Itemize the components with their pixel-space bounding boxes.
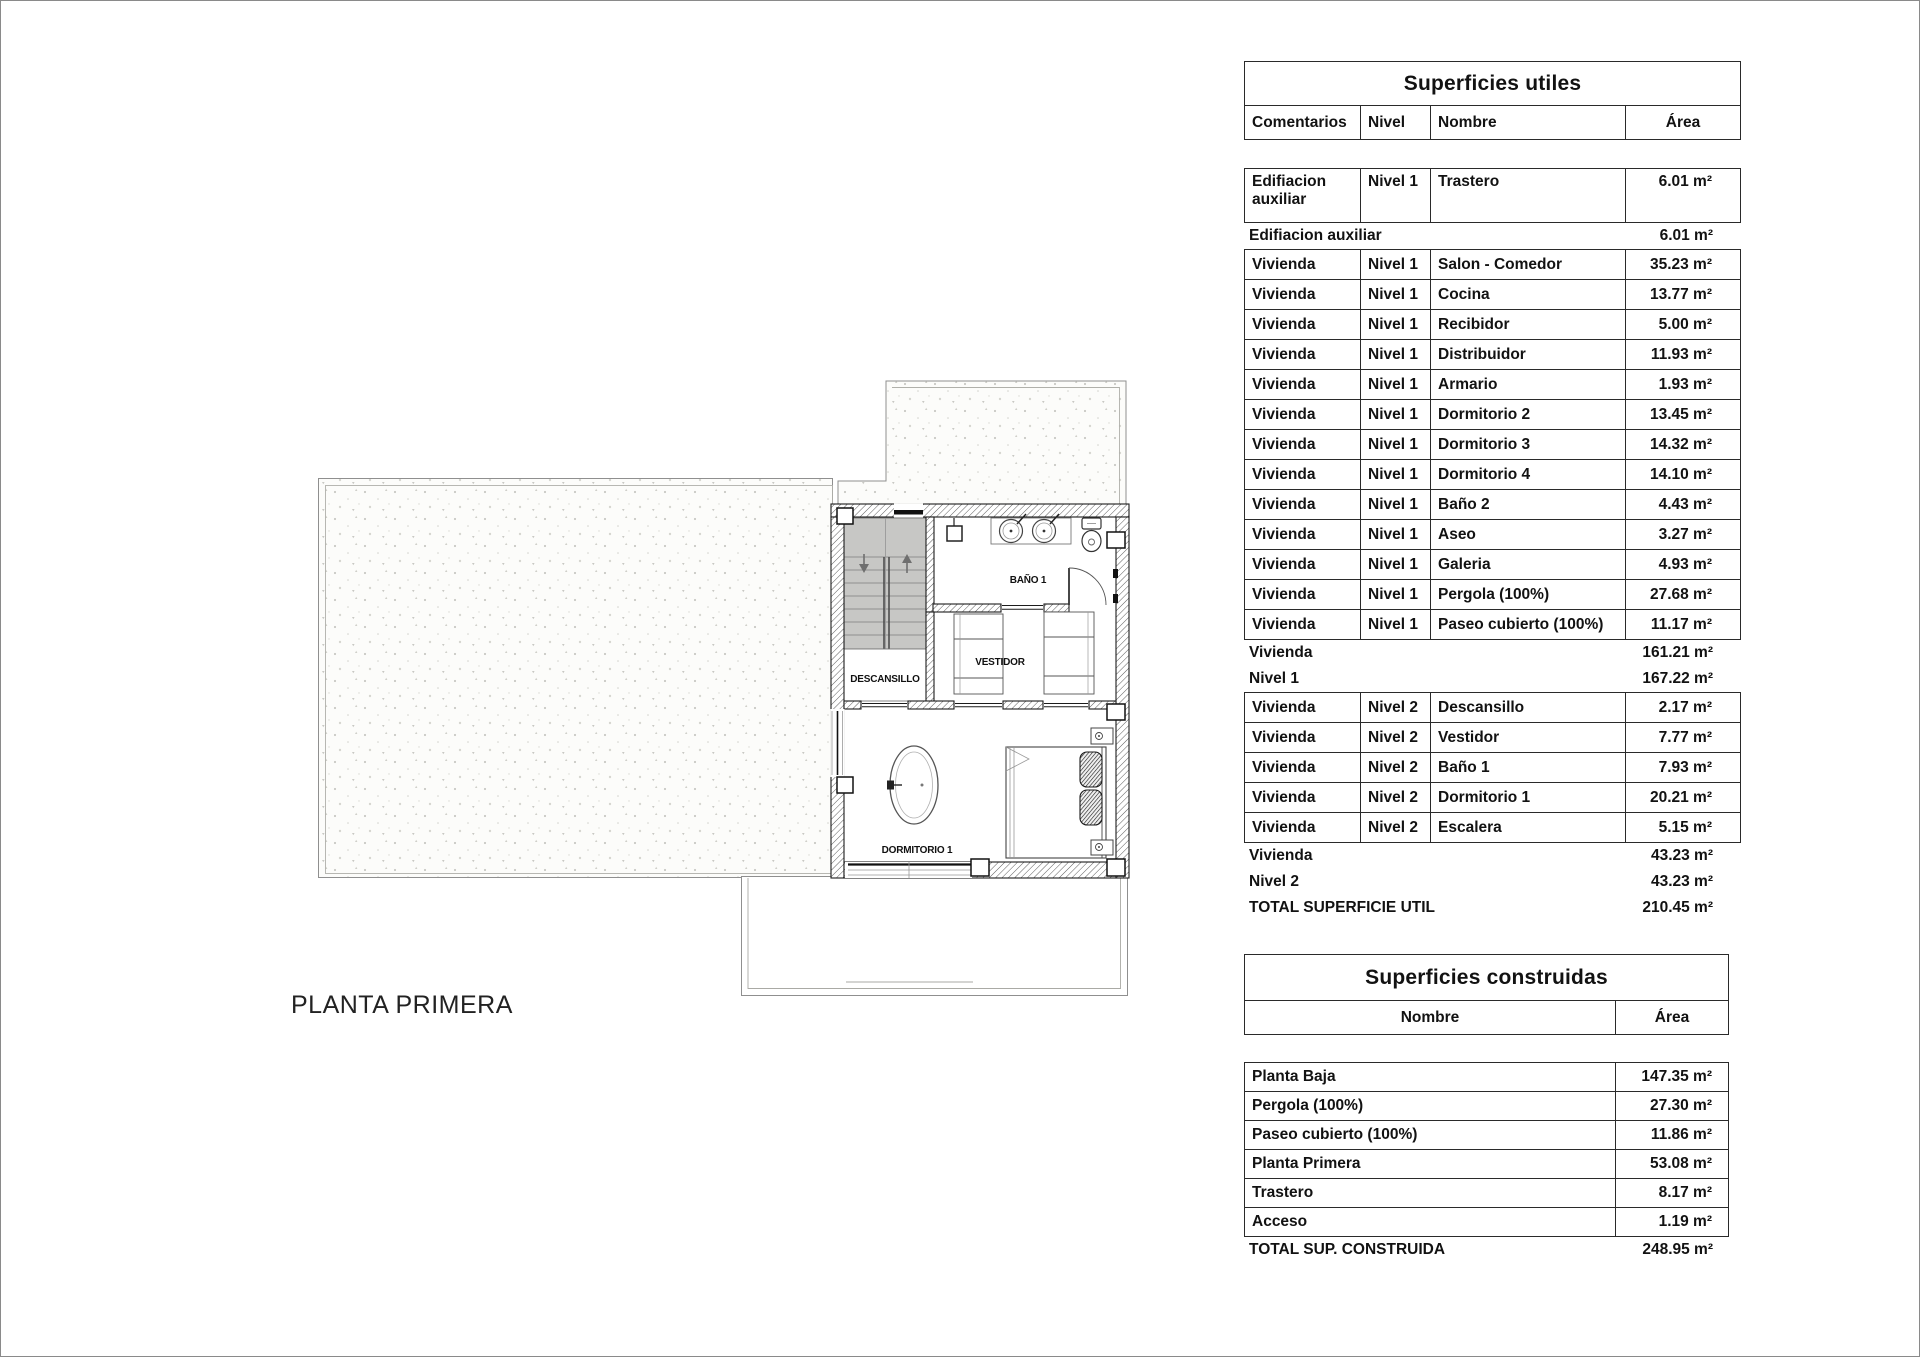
cell-area: 20.21 m² [1625, 783, 1740, 812]
table-row: ViviendaNivel 2Descansillo2.17 m² [1245, 693, 1740, 722]
header-comentarios: Comentarios [1245, 106, 1360, 139]
cell-nivel: Nivel 1 [1360, 430, 1430, 459]
cell-nivel: Nivel 1 [1360, 520, 1430, 549]
cell-area: 35.23 m² [1625, 250, 1740, 279]
cell-nombre: Dormitorio 2 [1430, 400, 1625, 429]
cell-nivel: Nivel 1 [1360, 490, 1430, 519]
cell-comentarios: Vivienda [1245, 610, 1360, 639]
cell-comentarios: Vivienda [1245, 370, 1360, 399]
cell-area: 4.93 m² [1625, 550, 1740, 579]
table-row: ViviendaNivel 2Escalera5.15 m² [1245, 812, 1740, 842]
cell-nombre: Paseo cubierto (100%) [1245, 1121, 1615, 1149]
cell-comentarios: Vivienda [1245, 753, 1360, 782]
cell-nombre: Cocina [1430, 280, 1625, 309]
table-subtotal-row: Edifiacion auxiliar6.01 m² [1244, 223, 1741, 249]
cell-area: 147.35 m² [1615, 1063, 1728, 1091]
table-row: ViviendaNivel 2Baño 17.93 m² [1245, 752, 1740, 782]
cell-comentarios: Vivienda [1245, 693, 1360, 722]
table-row: Edifiacion auxiliarNivel 1Trastero6.01 m… [1245, 169, 1740, 222]
subtotal-area: 43.23 m² [1651, 847, 1741, 865]
cell-nombre: Baño 1 [1430, 753, 1625, 782]
table-row: ViviendaNivel 1Paseo cubierto (100%)11.1… [1245, 609, 1740, 639]
cell-nivel: Nivel 2 [1360, 693, 1430, 722]
cell-nivel: Nivel 1 [1360, 460, 1430, 489]
subtotal-area: 6.01 m² [1660, 227, 1741, 245]
table-subtotal-row: Vivienda161.21 m² [1244, 640, 1741, 666]
total-label: TOTAL SUP. CONSTRUIDA [1249, 1241, 1445, 1259]
cell-nivel: Nivel 1 [1360, 250, 1430, 279]
staircase [844, 518, 926, 649]
table-subtotal-row: Nivel 243.23 m² [1244, 869, 1741, 895]
cell-area: 13.45 m² [1625, 400, 1740, 429]
cell-nombre: Paseo cubierto (100%) [1430, 610, 1625, 639]
cell-area: 8.17 m² [1615, 1179, 1728, 1207]
cell-nombre: Recibidor [1430, 310, 1625, 339]
cell-nombre: Galeria [1430, 550, 1625, 579]
cell-area: 14.10 m² [1625, 460, 1740, 489]
cell-area: 11.86 m² [1615, 1121, 1728, 1149]
window-bottom [845, 862, 972, 878]
cell-nombre: Distribuidor [1430, 340, 1625, 369]
table-row: ViviendaNivel 1Baño 24.43 m² [1245, 489, 1740, 519]
cell-area: 4.43 m² [1625, 490, 1740, 519]
cell-nombre: Acceso [1245, 1208, 1615, 1236]
toilet-icon [1082, 518, 1101, 552]
table-row: Paseo cubierto (100%)11.86 m² [1245, 1120, 1728, 1149]
table-row-group: ViviendaNivel 2Descansillo2.17 m²Viviend… [1244, 692, 1741, 843]
cell-nombre: Dormitorio 1 [1430, 783, 1625, 812]
cell-nivel: Nivel 1 [1360, 610, 1430, 639]
cell-area: 1.93 m² [1625, 370, 1740, 399]
cell-nivel: Nivel 1 [1360, 370, 1430, 399]
cell-comentarios: Vivienda [1245, 460, 1360, 489]
cell-area: 27.68 m² [1625, 580, 1740, 609]
cell-nivel: Nivel 1 [1360, 580, 1430, 609]
cell-comentarios: Vivienda [1245, 813, 1360, 842]
cell-nombre: Pergola (100%) [1245, 1092, 1615, 1120]
cell-nombre: Pergola (100%) [1430, 580, 1625, 609]
drawing-sheet: DESCANSILLO VESTIDOR BAÑO 1 DORMITORIO 1… [0, 0, 1920, 1357]
table-row-group: Edifiacion auxiliarNivel 1Trastero6.01 m… [1244, 168, 1741, 223]
header-area: Área [1615, 1001, 1728, 1034]
cell-nivel: Nivel 1 [1360, 340, 1430, 369]
cell-comentarios: Vivienda [1245, 340, 1360, 369]
cell-area: 6.01 m² [1625, 169, 1740, 222]
cell-nombre: Aseo [1430, 520, 1625, 549]
cell-nivel: Nivel 2 [1360, 813, 1430, 842]
cell-area: 7.93 m² [1625, 753, 1740, 782]
table-row: ViviendaNivel 1Armario1.93 m² [1245, 369, 1740, 399]
table-header-row: NombreÁrea [1244, 1001, 1729, 1035]
table-row: ViviendaNivel 1Dormitorio 213.45 m² [1245, 399, 1740, 429]
floor-plan-caption: PLANTA PRIMERA [291, 991, 513, 1020]
cell-area: 14.32 m² [1625, 430, 1740, 459]
terrace-porch [742, 877, 1128, 996]
room-label-dressing: VESTIDOR [975, 657, 1025, 668]
table-row: Acceso1.19 m² [1245, 1207, 1728, 1236]
cell-nombre: Dormitorio 3 [1430, 430, 1625, 459]
table-superficies-construidas: Superficies construidasNombreÁreaPlanta … [1244, 954, 1729, 1263]
cell-nombre: Planta Primera [1245, 1150, 1615, 1178]
header-nivel: Nivel [1360, 106, 1430, 139]
cell-nivel: Nivel 1 [1360, 400, 1430, 429]
cell-area: 1.19 m² [1615, 1208, 1728, 1236]
table-row: ViviendaNivel 1Dormitorio 314.32 m² [1245, 429, 1740, 459]
cell-nivel: Nivel 1 [1360, 169, 1430, 222]
table-title: Superficies construidas [1244, 954, 1729, 1001]
table-row: ViviendaNivel 2Dormitorio 120.21 m² [1245, 782, 1740, 812]
table-subtotal-row: Vivienda43.23 m² [1244, 843, 1741, 869]
subtotal-area: 167.22 m² [1642, 670, 1741, 688]
cell-comentarios: Edifiacion auxiliar [1245, 169, 1360, 222]
header-area: Área [1625, 106, 1740, 139]
cell-comentarios: Vivienda [1245, 550, 1360, 579]
table-row: ViviendaNivel 1Recibidor5.00 m² [1245, 309, 1740, 339]
table-total-row: TOTAL SUP. CONSTRUIDA248.95 m² [1244, 1237, 1729, 1263]
subtotal-area: 161.21 m² [1642, 644, 1741, 662]
cell-nivel: Nivel 1 [1360, 310, 1430, 339]
table-row: ViviendaNivel 1Aseo3.27 m² [1245, 519, 1740, 549]
table-row: ViviendaNivel 1Dormitorio 414.10 m² [1245, 459, 1740, 489]
subtotal-label: Nivel 1 [1249, 670, 1299, 688]
table-row: ViviendaNivel 2Vestidor7.77 m² [1245, 722, 1740, 752]
cell-area: 3.27 m² [1625, 520, 1740, 549]
cell-comentarios: Vivienda [1245, 310, 1360, 339]
cell-comentarios: Vivienda [1245, 580, 1360, 609]
cell-nivel: Nivel 2 [1360, 783, 1430, 812]
cell-nombre: Descansillo [1430, 693, 1625, 722]
table-row: ViviendaNivel 1Salon - Comedor35.23 m² [1245, 250, 1740, 279]
header-nombre: Nombre [1430, 106, 1625, 139]
cell-comentarios: Vivienda [1245, 783, 1360, 812]
table-row: ViviendaNivel 1Pergola (100%)27.68 m² [1245, 579, 1740, 609]
table-row: Planta Baja147.35 m² [1245, 1063, 1728, 1091]
subtotal-label: TOTAL SUPERFICIE UTIL [1249, 899, 1435, 917]
total-area: 248.95 m² [1642, 1241, 1729, 1259]
table-row: ViviendaNivel 1Galeria4.93 m² [1245, 549, 1740, 579]
cell-nombre: Armario [1430, 370, 1625, 399]
nightstand-icon [1091, 840, 1113, 855]
table-row: Planta Primera53.08 m² [1245, 1149, 1728, 1178]
cell-nombre: Dormitorio 4 [1430, 460, 1625, 489]
terrace-upper-right [838, 381, 1126, 504]
cell-nombre: Planta Baja [1245, 1063, 1615, 1091]
stair-lintel [894, 504, 923, 518]
cell-comentarios: Vivienda [1245, 280, 1360, 309]
nightstand-icon [1091, 728, 1113, 744]
cell-nombre: Trastero [1430, 169, 1625, 222]
cell-nivel: Nivel 2 [1360, 753, 1430, 782]
table-row: Trastero8.17 m² [1245, 1178, 1728, 1207]
cell-area: 27.30 m² [1615, 1092, 1728, 1120]
subtotal-label: Vivienda [1249, 644, 1312, 662]
cell-area: 5.00 m² [1625, 310, 1740, 339]
table-subtotal-row: Nivel 1167.22 m² [1244, 666, 1741, 692]
subtotal-label: Nivel 2 [1249, 873, 1299, 891]
subtotal-label: Edifiacion auxiliar [1249, 227, 1382, 245]
room-label-bathroom: BAÑO 1 [1010, 573, 1047, 586]
cell-nivel: Nivel 2 [1360, 723, 1430, 752]
header-nombre: Nombre [1245, 1001, 1615, 1034]
table-title: Superficies utiles [1244, 61, 1741, 106]
table-row-group: Planta Baja147.35 m²Pergola (100%)27.30 … [1244, 1062, 1729, 1237]
table-row: ViviendaNivel 1Distribuidor11.93 m² [1245, 339, 1740, 369]
subtotal-label: Vivienda [1249, 847, 1312, 865]
subtotal-area: 43.23 m² [1651, 873, 1741, 891]
cell-area: 7.77 m² [1625, 723, 1740, 752]
cell-comentarios: Vivienda [1245, 723, 1360, 752]
table-header-row: ComentariosNivelNombreÁrea [1244, 106, 1741, 140]
room-label-bedroom: DORMITORIO 1 [882, 845, 953, 856]
cell-nombre: Salon - Comedor [1430, 250, 1625, 279]
table-row: Pergola (100%)27.30 m² [1245, 1091, 1728, 1120]
terrace-left [319, 479, 833, 878]
room-label-landing: DESCANSILLO [850, 674, 920, 685]
cell-area: 13.77 m² [1625, 280, 1740, 309]
cell-comentarios: Vivienda [1245, 430, 1360, 459]
cell-nivel: Nivel 1 [1360, 280, 1430, 309]
window-left [831, 709, 845, 777]
subtotal-area: 210.45 m² [1642, 899, 1741, 917]
table-row: ViviendaNivel 1Cocina13.77 m² [1245, 279, 1740, 309]
cell-area: 11.17 m² [1625, 610, 1740, 639]
cell-comentarios: Vivienda [1245, 250, 1360, 279]
cell-comentarios: Vivienda [1245, 400, 1360, 429]
cell-nivel: Nivel 1 [1360, 550, 1430, 579]
cell-nombre: Baño 2 [1430, 490, 1625, 519]
cell-area: 53.08 m² [1615, 1150, 1728, 1178]
cell-comentarios: Vivienda [1245, 490, 1360, 519]
cell-nombre: Vestidor [1430, 723, 1625, 752]
floor-plan: DESCANSILLO VESTIDOR BAÑO 1 DORMITORIO 1 [301, 371, 1141, 1021]
cell-nombre: Escalera [1430, 813, 1625, 842]
cell-area: 2.17 m² [1625, 693, 1740, 722]
cell-nombre: Trastero [1245, 1179, 1615, 1207]
table-row-group: ViviendaNivel 1Salon - Comedor35.23 m²Vi… [1244, 249, 1741, 640]
table-superficies-utiles: Superficies utilesComentariosNivelNombre… [1244, 61, 1741, 921]
cell-area: 5.15 m² [1625, 813, 1740, 842]
cell-comentarios: Vivienda [1245, 520, 1360, 549]
cell-area: 11.93 m² [1625, 340, 1740, 369]
table-total-row: TOTAL SUPERFICIE UTIL210.45 m² [1244, 895, 1741, 921]
